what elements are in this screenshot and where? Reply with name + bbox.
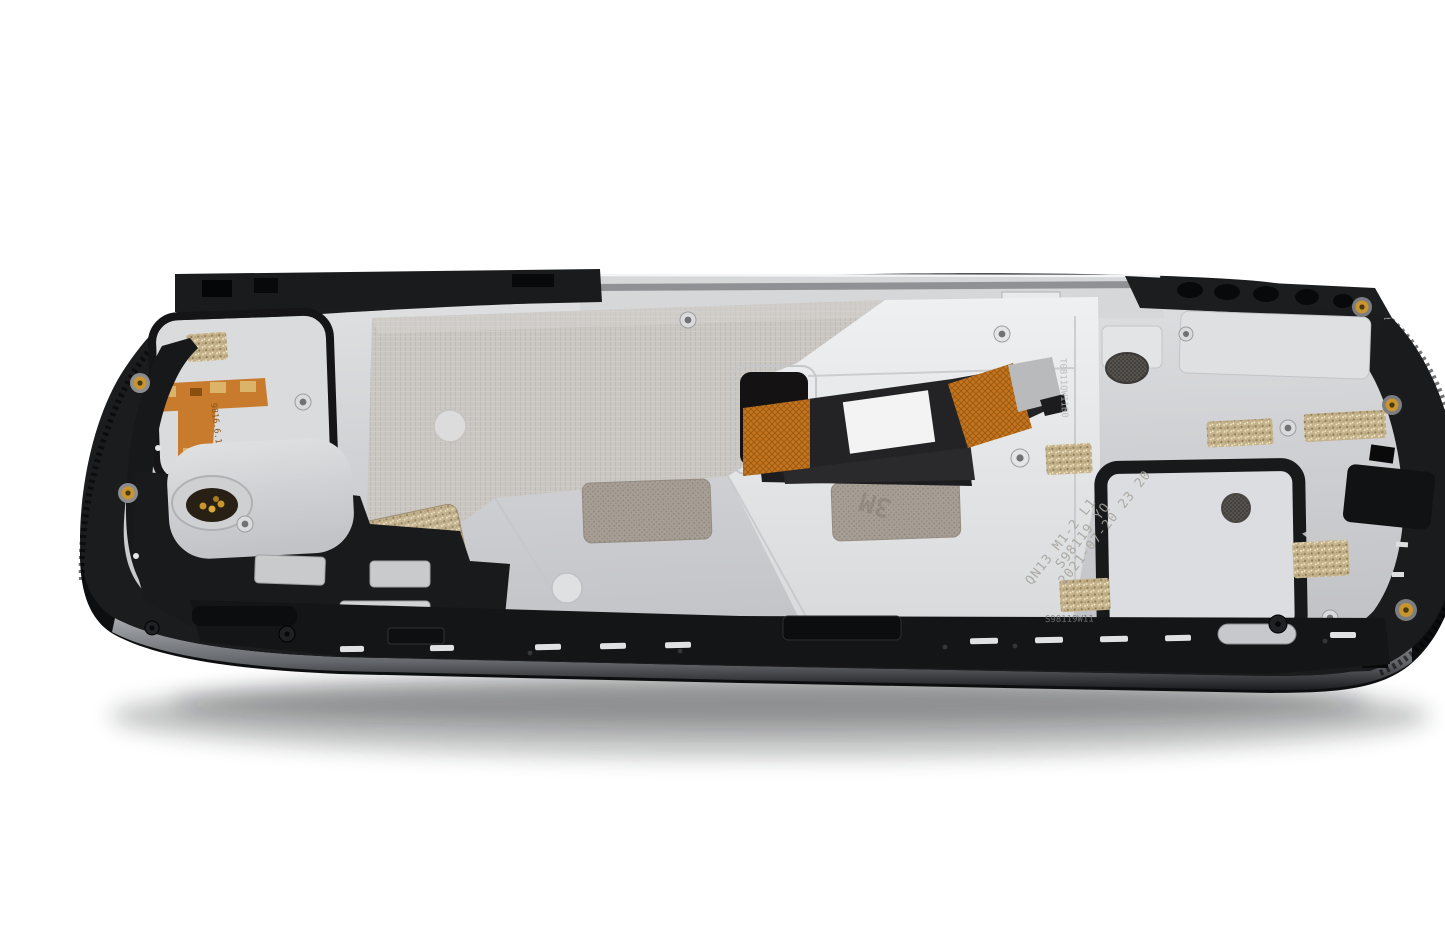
product-image: 3M T0811QW11B0 9816.6.10 P9020A (40, 16, 1445, 926)
vibration-motor-contact (186, 488, 238, 522)
mesh-vent-hole (1106, 353, 1148, 383)
graphite-pad-right: 3M (831, 479, 961, 541)
plate-hole (552, 573, 582, 603)
graphite-pad-left (582, 479, 712, 543)
connector-etched-code: T0811QW11B0 (1057, 358, 1069, 418)
speaker-pocket (1342, 464, 1436, 531)
product-photo: 3M T0811QW11B0 9816.6.10 P9020A (40, 16, 1445, 926)
rail-etched-code: S98119W11 (1045, 615, 1094, 625)
